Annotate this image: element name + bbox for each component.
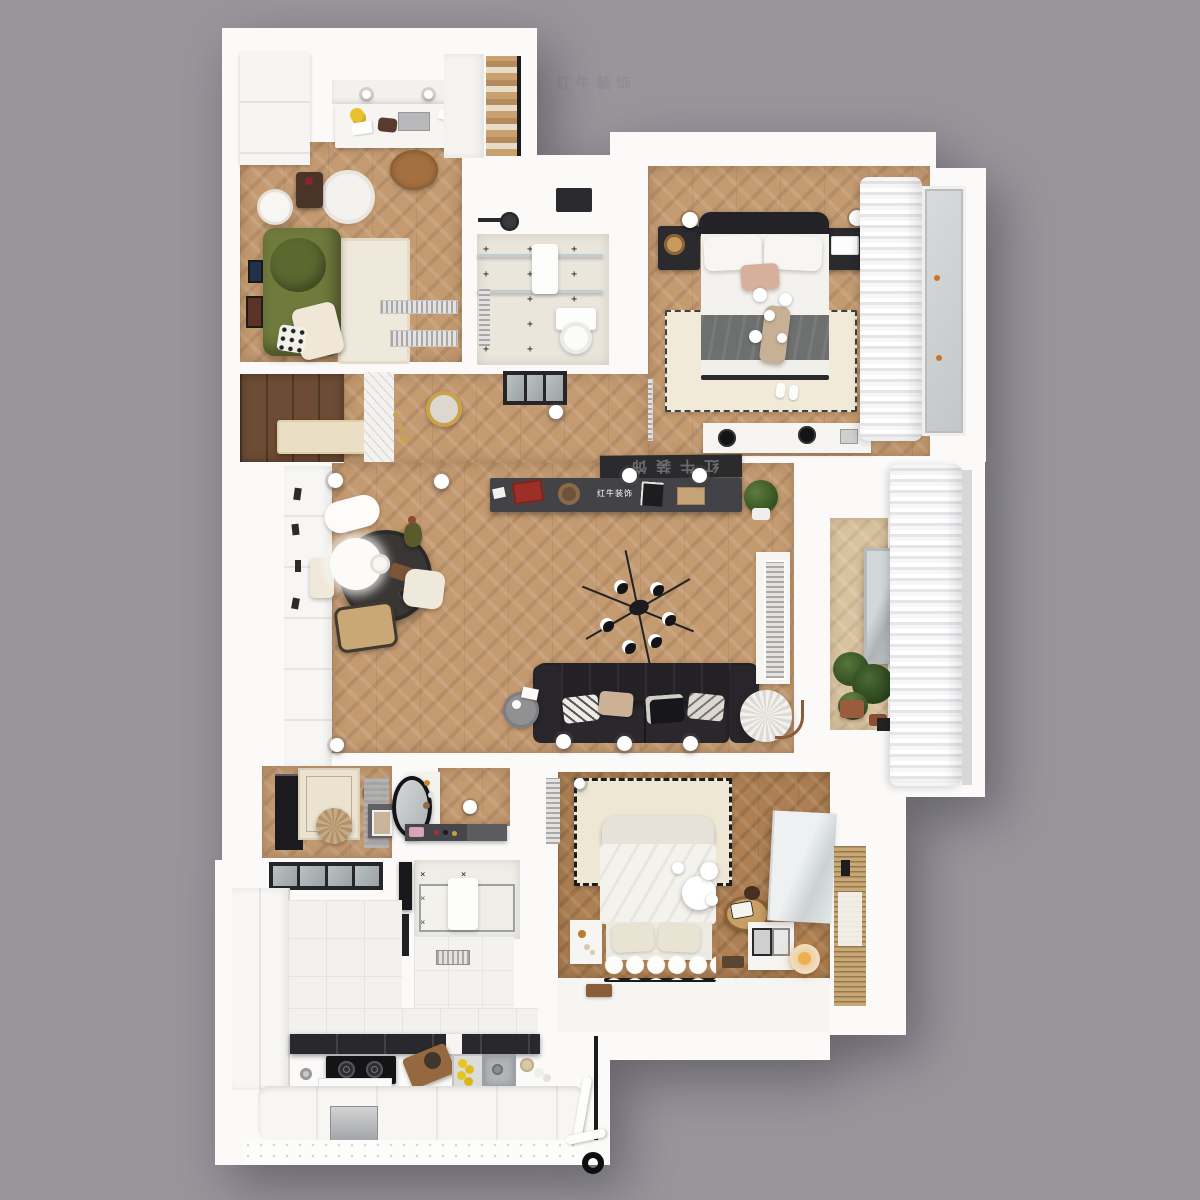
bed2-pillow-2 [657, 923, 700, 953]
hall-ceiling-light [549, 405, 563, 419]
dining-bentwood-chair [333, 600, 399, 654]
balcony-window-rail [962, 470, 972, 785]
closet-wood-shelves [486, 56, 518, 156]
office-desk-chair [390, 150, 438, 190]
vanity-pink-pad [409, 827, 424, 837]
master-open-book [831, 236, 859, 255]
kitchen-faucet [492, 1064, 503, 1075]
vanity-perfume-2 [428, 792, 434, 798]
scene: 红牛装饰 [0, 0, 1200, 1200]
living-radiator-grille [764, 560, 786, 680]
bed2-nightstand [570, 920, 602, 964]
office-floor-vent-2 [390, 330, 458, 347]
master-wall-lamp-left [682, 212, 698, 228]
dining-vase-flower [408, 516, 416, 524]
chandelier-disc-5 [622, 640, 636, 654]
master-pendant-sphere-1 [753, 288, 767, 302]
bed2-chair-bowl [744, 886, 760, 900]
bed2-amber-bottle [578, 930, 586, 938]
kitchen-lemon-2 [465, 1065, 474, 1074]
living-plant-pot [752, 508, 770, 520]
master-pendant-sphere-3 [764, 310, 775, 321]
master-dresser-frame [840, 429, 858, 444]
closet-cabinet [444, 54, 484, 158]
dining-chair-right [402, 568, 446, 611]
bed2-mirror-wardrobe [767, 810, 837, 923]
glass-pane [300, 866, 324, 886]
hall-glass-door [503, 371, 567, 405]
vanity-cosmetic-gold [452, 831, 457, 836]
bed2-photo-frame-1 [752, 928, 772, 956]
kitchen-bread [424, 1052, 441, 1069]
kitchen-burner-2 [366, 1061, 383, 1078]
master-slipper-2 [788, 385, 798, 401]
vanity-floor [438, 768, 510, 826]
bath2-floor-drain [436, 950, 470, 965]
bed2-cup-2 [590, 950, 595, 955]
vanity-perfume-3 [423, 802, 430, 809]
floorplan: + + + + + + + + + + + + + + + + + + + + … [0, 0, 1200, 1200]
chandelier-disc-2 [650, 582, 664, 596]
chandelier-disc-3 [662, 612, 676, 626]
bath2-white-floor [414, 936, 514, 1010]
living-ceiling-light-8 [330, 738, 344, 752]
bath1-bath-mat [532, 244, 558, 294]
glass-pane [527, 375, 544, 401]
glass-pane [546, 375, 563, 401]
kitchen-burner-1 [338, 1061, 355, 1078]
master-window-handle-2 [936, 355, 942, 361]
office-pouf-table [325, 174, 371, 220]
console-box [677, 487, 705, 505]
master-sheer-curtain [860, 177, 922, 441]
entry-art-frame [372, 810, 392, 836]
glass-pane [328, 866, 352, 886]
bed2-blinds-remote [841, 860, 850, 876]
master-pink-pillow [740, 263, 780, 292]
office-notebook [377, 117, 397, 133]
entry-glass-sliding-door [269, 862, 383, 890]
closet-edge-line [517, 56, 521, 156]
sofa-pillow-black [645, 694, 685, 725]
bed2-photo-frame-2 [772, 928, 790, 956]
glass-pane [355, 866, 379, 886]
living-ceiling-light-1 [328, 473, 343, 488]
chandelier-disc-1 [614, 580, 628, 594]
hall-wallpaper-panel [364, 372, 394, 462]
dining-plate [370, 554, 390, 574]
bath1-toilet-bowl [560, 322, 592, 354]
master-pendant-sphere-4 [749, 330, 762, 343]
kitchen-pantry-columns [232, 888, 290, 1090]
bed2-serving-tray [586, 984, 612, 997]
bed2-striped-cabinet [546, 778, 560, 844]
office-wardrobe [240, 52, 310, 165]
hall-brass-candlestick-1 [393, 412, 399, 418]
kitchen-tile-strip [288, 1008, 538, 1034]
living-ceiling-light-6 [617, 736, 632, 751]
bed2-headboard [602, 816, 714, 846]
master-vinyl-record-2 [798, 426, 816, 444]
kitchen-lemon-4 [464, 1077, 473, 1086]
kitchen-bowl [520, 1058, 534, 1072]
kitchen-steel-appliance [330, 1106, 378, 1144]
dining-olive-vase [404, 522, 422, 547]
master-pendant-sphere-5 [777, 333, 787, 343]
side-table-candle [512, 700, 521, 709]
vanity-cosmetic-red [434, 830, 439, 835]
sofa-pillow-grey [687, 692, 726, 722]
office-cabinet-light [362, 90, 371, 99]
vanity-sphere-light [463, 800, 477, 814]
office-sunflowers [350, 108, 364, 122]
bed2-pendant-sphere-medium [700, 862, 718, 880]
balcony-sheer-curtain [890, 464, 962, 786]
kitchen-cabinet-gap [446, 1034, 462, 1054]
vanity-perfume-1 [424, 780, 430, 786]
sofa-pillow-beige [598, 691, 634, 718]
sofa-pillow-bw [562, 694, 601, 724]
office-floor-vent-1 [380, 300, 458, 314]
office-cabinet-light-2 [424, 90, 433, 99]
office-cup [305, 177, 313, 185]
bed2-small-box [722, 956, 744, 968]
living-ceiling-light-7 [683, 736, 698, 751]
console-logo-text: 红牛装饰 [597, 488, 633, 499]
office-floor-lamp [260, 192, 290, 222]
console-plate [558, 483, 580, 505]
hall-brass-candlestick-2 [397, 424, 403, 430]
bed2-cup-1 [584, 944, 590, 950]
kitchen-lower-cabinets [258, 1086, 584, 1142]
vanity-cosmetic-black [443, 830, 448, 835]
master-vinyl-record-1 [718, 429, 736, 447]
balcony-terracotta-pot [840, 700, 864, 718]
living-cabinet-decor-3 [295, 560, 301, 572]
kitchen-speckle-floor [244, 1140, 584, 1162]
bed2-glow-lamp-bulb [798, 952, 811, 965]
master-nightstand-bowl [664, 234, 685, 255]
master-balcony-window [922, 186, 966, 436]
bath1-shelf-grille [479, 288, 490, 346]
office-wall-frame-2 [246, 296, 263, 328]
hall-gold-mirror [426, 391, 462, 427]
living-ceiling-light-4 [692, 468, 707, 483]
hall-cream-chest [277, 420, 369, 454]
chandelier-disc-6 [600, 618, 614, 632]
master-bed-frame-end [701, 375, 829, 380]
glass-pane [273, 866, 297, 886]
office-wall-frame-1 [248, 260, 263, 283]
kitchen-kettle [300, 1068, 312, 1080]
kitchen-dark-edge [594, 1036, 598, 1140]
kitchen-upper-cabinets [290, 1034, 540, 1054]
console-red-book [512, 479, 545, 505]
chandelier-disc-4 [648, 634, 662, 648]
bed2-ruffled-throw [604, 954, 716, 980]
bath1-shower-head [500, 212, 519, 231]
living-ceiling-light-3 [622, 468, 637, 483]
kitchen-jar-2 [543, 1074, 551, 1082]
door-knob [582, 1152, 604, 1174]
office-sofa-cushion [270, 238, 326, 292]
master-pendant-sphere-2 [779, 293, 792, 306]
living-cabinet-decor-2 [291, 524, 299, 536]
bath1-skylight [556, 188, 592, 212]
bed2-ceiling-light [574, 778, 585, 789]
bath2-bath-mat [448, 878, 478, 930]
bed2-pendant-sphere-small-2 [706, 894, 718, 906]
bed2-blinds-white-band [838, 892, 862, 946]
bed2-pendant-sphere-small [672, 862, 684, 874]
office-laptop [398, 112, 430, 131]
living-ceiling-light-5 [556, 734, 571, 749]
master-headboard [699, 212, 829, 236]
master-window-handle-1 [934, 275, 940, 281]
living-ceiling-light-2 [434, 474, 449, 489]
glass-pane [507, 375, 524, 401]
console-brand-logo: 红牛装饰 [586, 487, 644, 499]
bed2-pillow-1 [611, 923, 654, 953]
entry-jute-pouf [316, 808, 352, 844]
office-patterned-pillow [276, 324, 308, 354]
hall-brass-candlestick-3 [401, 436, 408, 443]
